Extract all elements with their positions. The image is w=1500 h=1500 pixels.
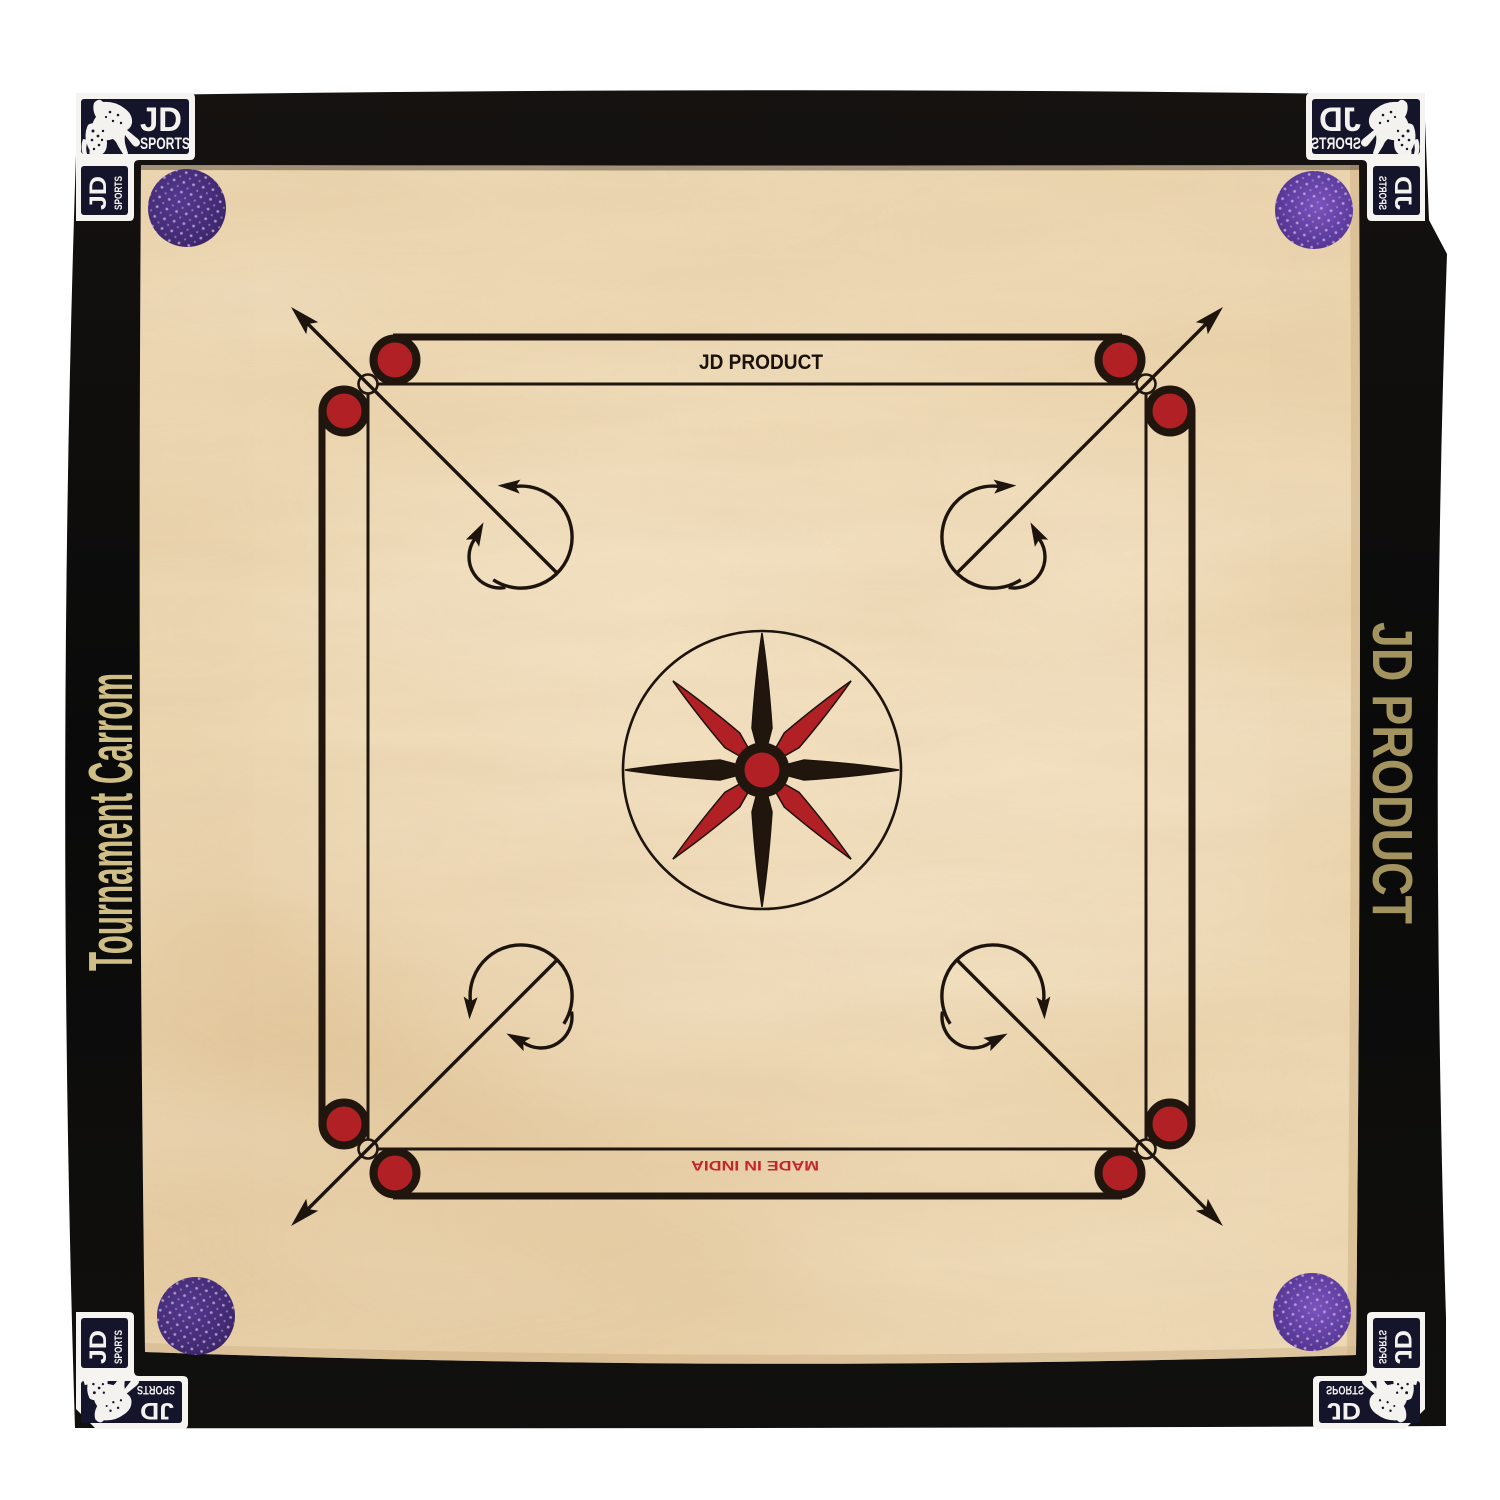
svg-text:SPORTS: SPORTS <box>137 1383 175 1397</box>
svg-text:Tournament Carrom: Tournament Carrom <box>77 673 146 971</box>
svg-text:JD: JD <box>85 176 112 210</box>
svg-text:JD: JD <box>85 1330 112 1364</box>
svg-text:MADE IN INDIA: MADE IN INDIA <box>691 1158 819 1174</box>
svg-text:SPORTS: SPORTS <box>113 1330 125 1364</box>
svg-text:JD: JD <box>140 1397 174 1424</box>
svg-text:JD PRODUCT: JD PRODUCT <box>1360 622 1424 924</box>
svg-text:SPORTS: SPORTS <box>113 176 125 210</box>
svg-text:JD PRODUCT: JD PRODUCT <box>699 351 823 374</box>
svg-text:SPORTS: SPORTS <box>140 134 190 153</box>
